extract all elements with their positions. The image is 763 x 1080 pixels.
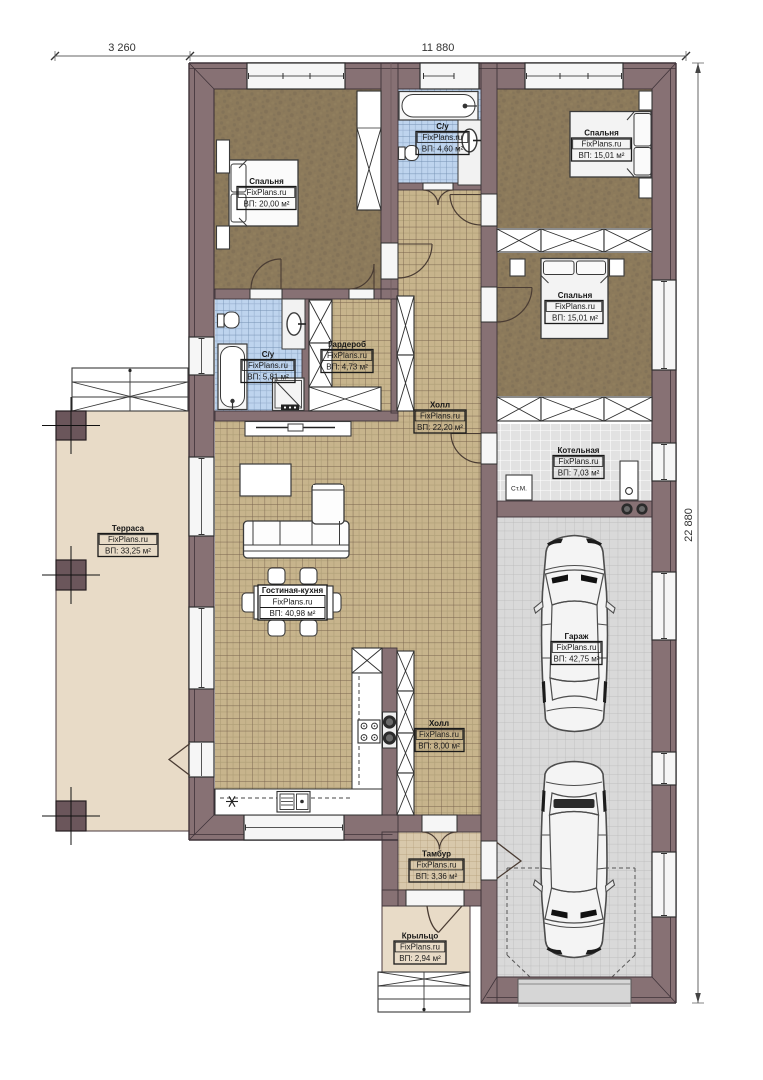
svg-text:FixPlans.ru: FixPlans.ru — [248, 361, 288, 370]
svg-text:ВП: 4,73 м²: ВП: 4,73 м² — [326, 362, 368, 371]
svg-text:FixPlans.ru: FixPlans.ru — [246, 188, 286, 197]
svg-text:Котельная: Котельная — [558, 446, 600, 455]
svg-text:FixPlans.ru: FixPlans.ru — [108, 535, 148, 544]
svg-text:FixPlans.ru: FixPlans.ru — [581, 139, 621, 148]
svg-text:Спальня: Спальня — [249, 177, 284, 186]
svg-text:ВП: 15,01 м²: ВП: 15,01 м² — [552, 313, 598, 322]
svg-text:Гардероб: Гардероб — [328, 340, 366, 349]
svg-text:Тамбур: Тамбур — [422, 850, 451, 859]
svg-text:С/у: С/у — [262, 350, 275, 359]
svg-text:ВП: 2,94 м²: ВП: 2,94 м² — [399, 954, 441, 963]
svg-text:ВП: 3,36 м²: ВП: 3,36 м² — [416, 872, 458, 881]
svg-text:ВП: 15,01 м²: ВП: 15,01 м² — [579, 151, 625, 160]
svg-text:FixPlans.ru: FixPlans.ru — [400, 942, 440, 951]
svg-text:3 260: 3 260 — [108, 42, 136, 54]
svg-text:Холл: Холл — [429, 719, 449, 728]
svg-text:Ст.М.: Ст.М. — [511, 486, 527, 493]
svg-text:FixPlans.ru: FixPlans.ru — [555, 302, 595, 311]
svg-text:С/у: С/у — [436, 122, 449, 131]
svg-text:ВП: 5,81 м²: ВП: 5,81 м² — [247, 372, 289, 381]
svg-text:Крыльцо: Крыльцо — [402, 932, 439, 941]
svg-text:ВП: 33,25 м²: ВП: 33,25 м² — [105, 546, 151, 555]
svg-text:Гостиная-кухня: Гостиная-кухня — [262, 586, 324, 595]
svg-text:ВП: 22,20 м²: ВП: 22,20 м² — [417, 423, 463, 432]
svg-text:Спальня: Спальня — [558, 291, 593, 300]
svg-text:Гараж: Гараж — [565, 632, 589, 641]
svg-text:FixPlans.ru: FixPlans.ru — [327, 351, 367, 360]
svg-text:22 880: 22 880 — [683, 508, 695, 542]
svg-text:ВП: 4,60 м²: ВП: 4,60 м² — [422, 144, 464, 153]
svg-text:Спальня: Спальня — [584, 129, 619, 138]
svg-text:ВП: 7,03 м²: ВП: 7,03 м² — [558, 468, 600, 477]
svg-text:Холл: Холл — [430, 401, 450, 410]
svg-text:ВП: 42,75 м²: ВП: 42,75 м² — [554, 654, 600, 663]
svg-text:FixPlans.ru: FixPlans.ru — [419, 730, 459, 739]
svg-text:ВП: 20,00 м²: ВП: 20,00 м² — [244, 199, 290, 208]
svg-text:ВП: 40,98 м²: ВП: 40,98 м² — [270, 609, 316, 618]
svg-text:FixPlans.ru: FixPlans.ru — [420, 411, 460, 420]
svg-text:ВП: 8,00 м²: ВП: 8,00 м² — [418, 741, 460, 750]
svg-text:FixPlans.ru: FixPlans.ru — [422, 133, 462, 142]
svg-text:FixPlans.ru: FixPlans.ru — [558, 457, 598, 466]
svg-text:FixPlans.ru: FixPlans.ru — [556, 643, 596, 652]
svg-text:FixPlans.ru: FixPlans.ru — [272, 598, 312, 607]
svg-text:Терраса: Терраса — [112, 524, 145, 533]
svg-text:FixPlans.ru: FixPlans.ru — [416, 860, 456, 869]
svg-text:11 880: 11 880 — [422, 42, 455, 54]
